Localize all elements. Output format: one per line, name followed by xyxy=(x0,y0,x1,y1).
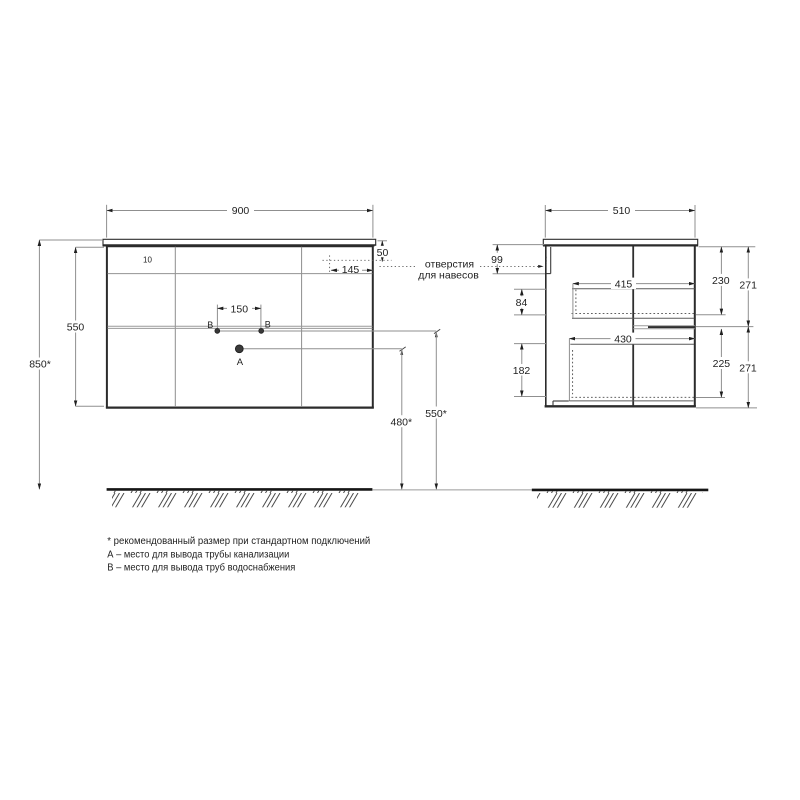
svg-text:415: 415 xyxy=(615,279,633,291)
svg-text:900: 900 xyxy=(232,205,250,217)
svg-text:B: B xyxy=(265,320,271,330)
svg-text:* рекомендованный размер при с: * рекомендованный размер при стандартном… xyxy=(107,536,370,547)
svg-text:550*: 550* xyxy=(425,408,447,420)
svg-text:10: 10 xyxy=(143,256,152,265)
svg-text:271: 271 xyxy=(739,363,757,375)
svg-text:480*: 480* xyxy=(390,417,412,429)
svg-text:для навесов: для навесов xyxy=(418,270,479,282)
svg-text:150: 150 xyxy=(231,303,249,315)
svg-text:50: 50 xyxy=(377,247,389,259)
svg-text:850*: 850* xyxy=(29,359,51,371)
svg-text:145: 145 xyxy=(342,264,360,276)
svg-text:B: B xyxy=(207,320,213,330)
svg-text:182: 182 xyxy=(513,365,531,377)
svg-text:A: A xyxy=(237,357,244,368)
svg-text:225: 225 xyxy=(713,358,731,370)
svg-text:84: 84 xyxy=(516,297,528,309)
svg-text:B – место для вывода труб водо: B – место для вывода труб водоснабжения xyxy=(107,563,295,574)
svg-text:отверстия: отверстия xyxy=(425,259,474,271)
svg-text:550: 550 xyxy=(67,322,85,334)
svg-text:271: 271 xyxy=(739,280,757,292)
svg-text:А – место для вывода трубы кан: А – место для вывода трубы канализации xyxy=(107,549,289,560)
svg-text:99: 99 xyxy=(491,254,503,266)
svg-text:230: 230 xyxy=(712,275,730,287)
svg-text:510: 510 xyxy=(613,205,631,217)
